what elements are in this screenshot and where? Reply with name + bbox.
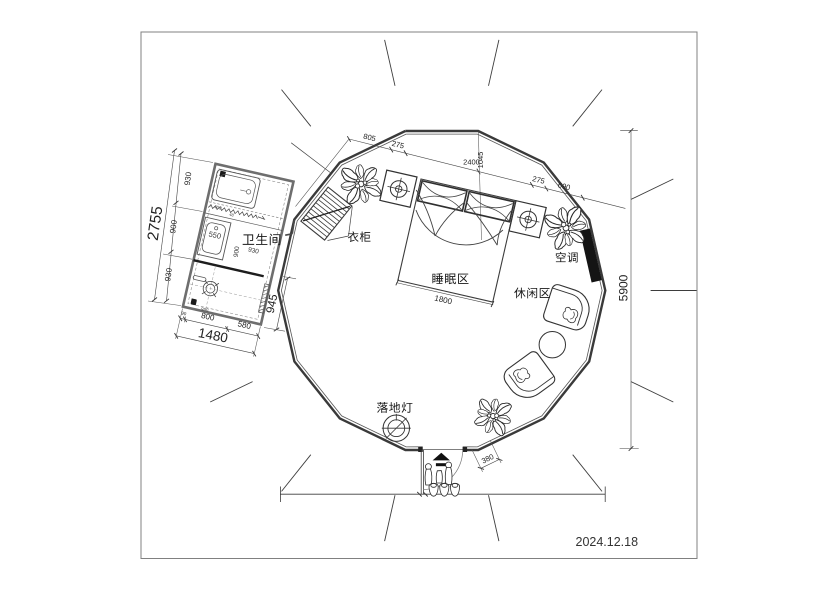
svg-text:5900: 5900 <box>617 274 631 301</box>
svg-text:930: 930 <box>183 171 194 186</box>
svg-text:900: 900 <box>168 219 179 234</box>
svg-text:1045: 1045 <box>476 152 485 169</box>
svg-text:2024.12.18: 2024.12.18 <box>576 535 639 549</box>
svg-text:930: 930 <box>163 267 174 282</box>
